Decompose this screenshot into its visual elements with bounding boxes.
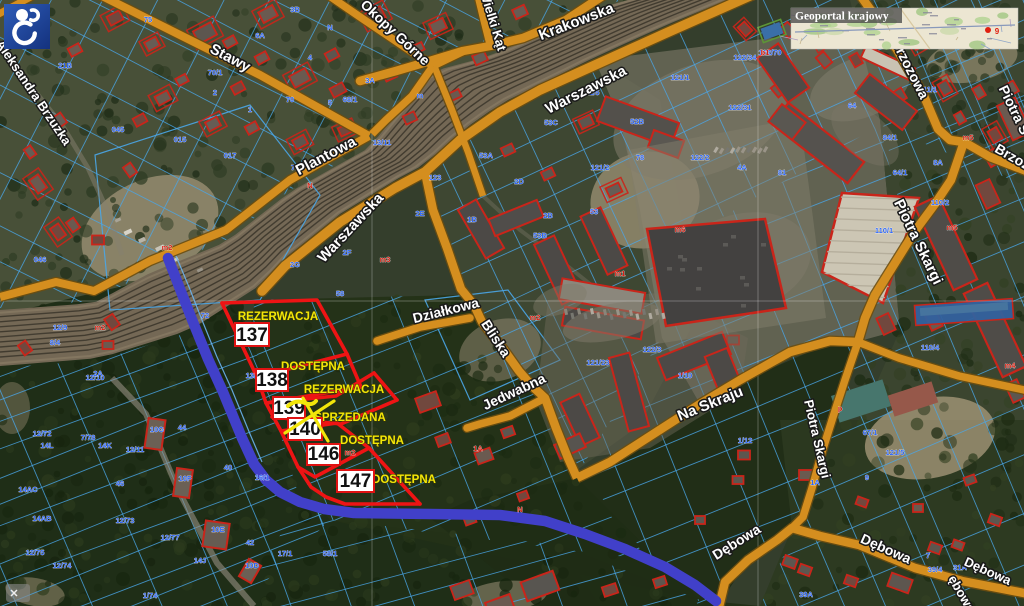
- svg-text:14AB: 14AB: [32, 514, 52, 523]
- svg-text:1A: 1A: [473, 444, 483, 453]
- svg-text:2E: 2E: [415, 209, 424, 218]
- svg-text:3A: 3A: [365, 76, 375, 85]
- svg-text:N: N: [517, 505, 522, 514]
- svg-text:015: 015: [174, 135, 187, 144]
- svg-text:78: 78: [636, 153, 644, 162]
- svg-text:7/78: 7/78: [81, 433, 96, 442]
- svg-text:DOSTĘPNA: DOSTĘPNA: [340, 435, 404, 447]
- svg-text:53: 53: [590, 207, 598, 216]
- svg-text:1: 1: [248, 105, 252, 114]
- svg-text:m1: m1: [615, 269, 626, 278]
- svg-text:8/4: 8/4: [50, 338, 61, 347]
- svg-text:39A: 39A: [799, 590, 813, 599]
- svg-text:16/1: 16/1: [255, 473, 270, 482]
- svg-text:52B: 52B: [630, 117, 644, 126]
- svg-text:2G: 2G: [290, 260, 300, 269]
- svg-text:9: 9: [995, 27, 1000, 36]
- svg-text:N: N: [307, 181, 312, 190]
- svg-text:81: 81: [778, 168, 786, 177]
- svg-text:64: 64: [848, 101, 857, 110]
- svg-text:40: 40: [224, 463, 232, 472]
- svg-text:1/10: 1/10: [678, 371, 693, 380]
- svg-text:DOSTĘPNA: DOSTĘPNA: [372, 474, 436, 486]
- svg-text:10F: 10F: [179, 474, 192, 483]
- svg-text:122/31: 122/31: [729, 103, 752, 112]
- svg-text:10D: 10D: [245, 561, 259, 570]
- svg-text:17/1: 17/1: [278, 549, 293, 558]
- svg-text:14AC: 14AC: [18, 485, 38, 494]
- svg-text:123: 123: [429, 173, 442, 182]
- svg-text:12/11: 12/11: [126, 445, 144, 454]
- svg-text:12/75: 12/75: [26, 548, 45, 557]
- svg-text:12/72: 12/72: [33, 429, 52, 438]
- svg-text:14L: 14L: [41, 441, 54, 450]
- svg-text:10G: 10G: [150, 425, 164, 434]
- svg-text:53B: 53B: [533, 231, 547, 240]
- svg-text:2B: 2B: [543, 211, 553, 220]
- svg-text:64/1: 64/1: [893, 168, 908, 177]
- svg-text:39/4: 39/4: [928, 565, 943, 574]
- svg-text:SPRZEDANA: SPRZEDANA: [314, 412, 386, 424]
- svg-text:REZERWACJA: REZERWACJA: [304, 384, 384, 396]
- svg-text:2: 2: [213, 88, 217, 97]
- svg-text:68/1: 68/1: [343, 95, 358, 104]
- svg-text:8A: 8A: [933, 158, 943, 167]
- svg-text:110/4: 110/4: [921, 343, 940, 352]
- svg-text:122/3: 122/3: [643, 345, 662, 354]
- svg-text:m6: m6: [675, 225, 686, 234]
- svg-text:67/1: 67/1: [863, 428, 878, 437]
- svg-text:1B: 1B: [467, 215, 477, 224]
- svg-text:12/9: 12/9: [53, 323, 68, 332]
- svg-text:1/74: 1/74: [143, 591, 158, 600]
- svg-text:121/1: 121/1: [671, 73, 690, 82]
- svg-text:14K: 14K: [98, 441, 112, 450]
- svg-text:58: 58: [336, 289, 344, 298]
- svg-text:m2: m2: [345, 448, 356, 457]
- svg-text:7: 7: [926, 551, 930, 560]
- svg-text:017: 017: [224, 151, 237, 160]
- svg-text:2A: 2A: [93, 369, 103, 378]
- svg-text:p: p: [838, 404, 843, 413]
- svg-text:2F: 2F: [343, 248, 352, 257]
- svg-text:9: 9: [865, 473, 869, 482]
- svg-text:121/5: 121/5: [886, 448, 905, 457]
- svg-text:122/2: 122/2: [691, 153, 710, 162]
- svg-text:146: 146: [308, 444, 340, 465]
- svg-text:70/1: 70/1: [208, 68, 223, 77]
- svg-text:75: 75: [144, 15, 152, 24]
- svg-text:3B: 3B: [290, 5, 300, 14]
- svg-text:1/12: 1/12: [738, 436, 753, 445]
- svg-text:42: 42: [246, 538, 254, 547]
- svg-text:121/23: 121/23: [587, 358, 610, 367]
- svg-text:53C: 53C: [544, 118, 558, 127]
- svg-text:14J: 14J: [194, 556, 207, 565]
- svg-text:12/77: 12/77: [161, 533, 180, 542]
- svg-text:12/74: 12/74: [53, 561, 73, 570]
- svg-text:70: 70: [286, 95, 294, 104]
- svg-text:4A: 4A: [737, 163, 747, 172]
- svg-text:122/34: 122/34: [734, 53, 758, 62]
- svg-text:6A: 6A: [255, 31, 265, 40]
- svg-text:046: 046: [34, 255, 47, 264]
- svg-text:121/2: 121/2: [591, 163, 610, 172]
- svg-text:m2: m2: [162, 243, 173, 252]
- svg-text:84/1: 84/1: [883, 133, 898, 142]
- svg-text:m5: m5: [947, 223, 958, 232]
- svg-text:138: 138: [256, 370, 288, 391]
- svg-text:2D: 2D: [514, 177, 524, 186]
- svg-text:045: 045: [112, 125, 125, 134]
- svg-text:53A: 53A: [479, 151, 493, 160]
- svg-text:m2: m2: [95, 323, 106, 332]
- svg-text:b1: b1: [761, 48, 770, 57]
- svg-text:10E: 10E: [211, 525, 224, 534]
- svg-text:147: 147: [340, 471, 372, 492]
- svg-text:Geoportal krajowy: Geoportal krajowy: [795, 11, 889, 23]
- svg-text:110/1: 110/1: [875, 226, 893, 235]
- svg-text:DOSTĘPNA: DOSTĘPNA: [281, 361, 345, 373]
- svg-text:m4: m4: [1005, 361, 1017, 370]
- svg-text:13/11: 13/11: [373, 138, 391, 147]
- svg-text:REZERWACJA: REZERWACJA: [238, 311, 318, 323]
- svg-text:46: 46: [116, 479, 124, 488]
- svg-text:m: m: [417, 91, 424, 100]
- svg-text:1A: 1A: [810, 478, 820, 487]
- svg-text:5: 5: [328, 98, 332, 107]
- svg-text:137: 137: [236, 325, 268, 346]
- svg-text:m2: m2: [530, 313, 541, 322]
- svg-text:N: N: [327, 23, 332, 32]
- svg-text:110/2: 110/2: [931, 198, 949, 207]
- svg-text:21B: 21B: [58, 61, 72, 70]
- svg-text:m5: m5: [963, 133, 974, 142]
- svg-text:m3: m3: [380, 255, 391, 264]
- svg-text:44: 44: [178, 423, 187, 432]
- svg-text:58/1: 58/1: [323, 549, 338, 558]
- svg-text:12/73: 12/73: [116, 516, 135, 525]
- svg-text:72: 72: [201, 311, 209, 320]
